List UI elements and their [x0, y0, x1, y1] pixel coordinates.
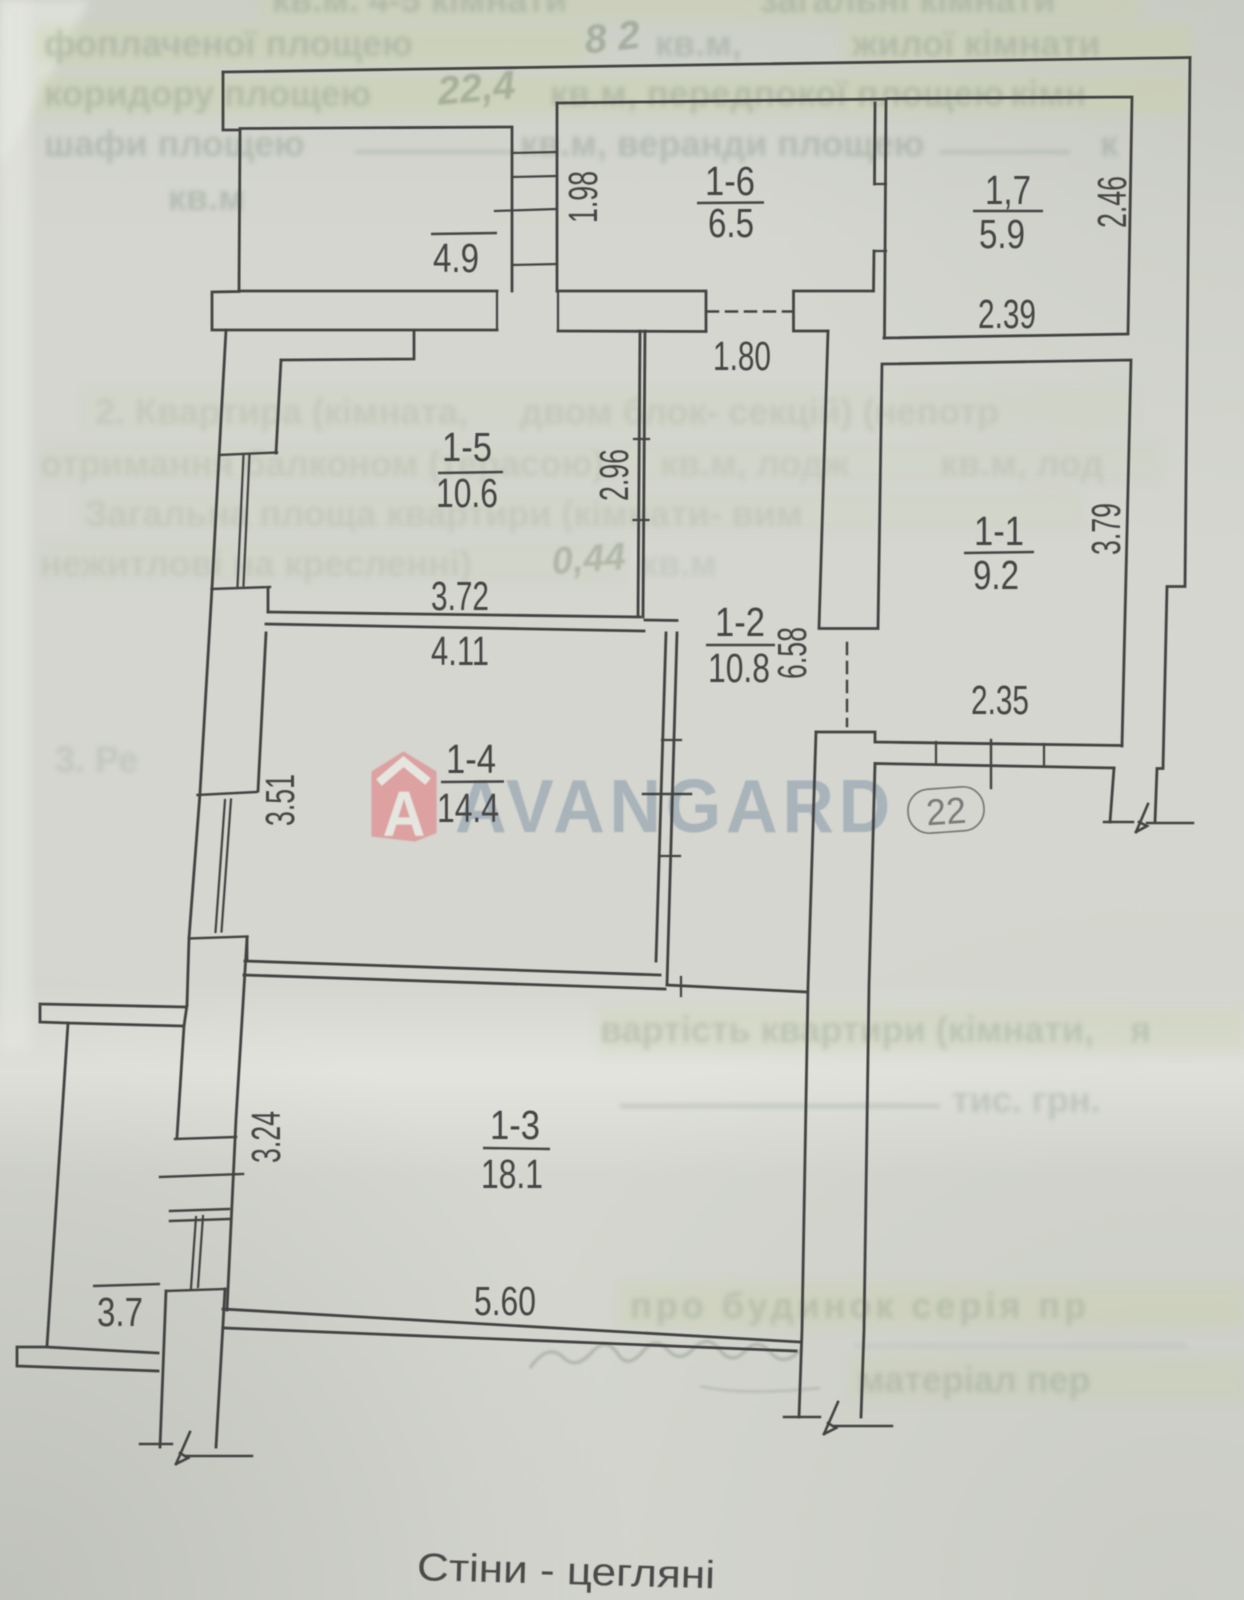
svg-text:2.39: 2.39: [978, 291, 1036, 337]
svg-text:загальні кімнати: загальні кімнати: [760, 0, 1055, 20]
svg-text:2. Квартира (кімната,: 2. Квартира (кімната,: [95, 391, 468, 432]
svg-text:AVANGARD: AVANGARD: [455, 764, 895, 848]
svg-text:кв.м. 4-5 кімнати: кв.м. 4-5 кімнати: [272, 0, 567, 20]
svg-text:к: к: [1100, 123, 1119, 164]
svg-text:3. Ре: 3. Ре: [55, 739, 138, 780]
svg-text:Стіни - цегляні: Стіни - цегляні: [416, 1546, 715, 1597]
svg-text:двом блок- секцій) (непотр: двом блок- секцій) (непотр: [520, 391, 999, 432]
svg-text:22: 22: [925, 790, 968, 834]
svg-text:кв.м, лодж: кв.м, лодж: [660, 443, 850, 484]
svg-text:10.6: 10.6: [436, 470, 498, 516]
svg-text:1-6: 1-6: [705, 158, 755, 204]
svg-text:кімн: кімн: [1010, 73, 1086, 114]
svg-text:нежитлові на кресленні): нежитлові на кресленні): [40, 543, 472, 584]
svg-text:1,7: 1,7: [985, 167, 1031, 213]
svg-text:жилої кімнати: жилої кімнати: [851, 23, 1100, 64]
svg-text:3.79: 3.79: [1083, 503, 1129, 555]
svg-text:3.7: 3.7: [97, 1289, 143, 1335]
svg-text:1.98: 1.98: [560, 171, 606, 223]
svg-text:кв.м, передпокої площею: кв.м, передпокої площею: [550, 73, 1004, 114]
svg-text:18.1: 18.1: [481, 1151, 543, 1197]
svg-text:1-5: 1-5: [442, 424, 492, 470]
svg-text:фоплаченої площею: фоплаченої площею: [44, 23, 413, 64]
svg-text:10.8: 10.8: [708, 645, 770, 691]
svg-text:коридору площею: коридору площею: [44, 73, 371, 114]
svg-text:6.5: 6.5: [708, 200, 754, 246]
svg-text:8 2: 8 2: [582, 13, 642, 63]
svg-text:14.4: 14.4: [437, 785, 499, 831]
svg-text:матеріал пер: матеріал пер: [858, 1359, 1090, 1400]
svg-text:0,44: 0,44: [550, 536, 627, 583]
svg-text:вартість квартири (кімнати,: вартість квартири (кімнати,: [600, 1009, 1094, 1050]
svg-text:кв.м, лод: кв.м, лод: [940, 443, 1104, 484]
svg-text:2.35: 2.35: [971, 677, 1029, 723]
svg-text:кв.м: кв.м: [640, 543, 717, 584]
svg-text:тис. грн.: тис. грн.: [952, 1079, 1101, 1120]
svg-text:5.9: 5.9: [979, 211, 1025, 257]
svg-text:1-2: 1-2: [715, 599, 765, 645]
svg-text:2.96: 2.96: [591, 449, 637, 501]
svg-text:5.60: 5.60: [474, 1278, 536, 1324]
svg-text:кв.м,: кв.м,: [655, 23, 742, 64]
svg-text:отримання балконом (терасою): отримання балконом (терасою): [40, 443, 604, 484]
svg-text:2.46: 2.46: [1089, 176, 1135, 228]
svg-text:9.2: 9.2: [973, 552, 1019, 598]
svg-text:1.80: 1.80: [713, 333, 771, 379]
svg-text:3.24: 3.24: [243, 1111, 289, 1163]
svg-text:6.58: 6.58: [769, 627, 815, 679]
svg-text:A: A: [383, 779, 426, 851]
svg-text:я: я: [1129, 1009, 1151, 1050]
svg-text:3.72: 3.72: [431, 573, 489, 619]
svg-text:1-4: 1-4: [446, 736, 496, 782]
svg-text:про будинок серія пр: про будинок серія пр: [630, 1285, 1090, 1326]
svg-text:1-3: 1-3: [490, 1102, 540, 1148]
svg-text:4.11: 4.11: [431, 628, 489, 674]
svg-text:кв.м: кв.м: [168, 177, 245, 218]
svg-text:3.51: 3.51: [257, 774, 303, 826]
svg-text:4.9: 4.9: [433, 235, 479, 281]
svg-text:22,4: 22,4: [435, 63, 517, 114]
svg-text:1-1: 1-1: [974, 508, 1024, 554]
